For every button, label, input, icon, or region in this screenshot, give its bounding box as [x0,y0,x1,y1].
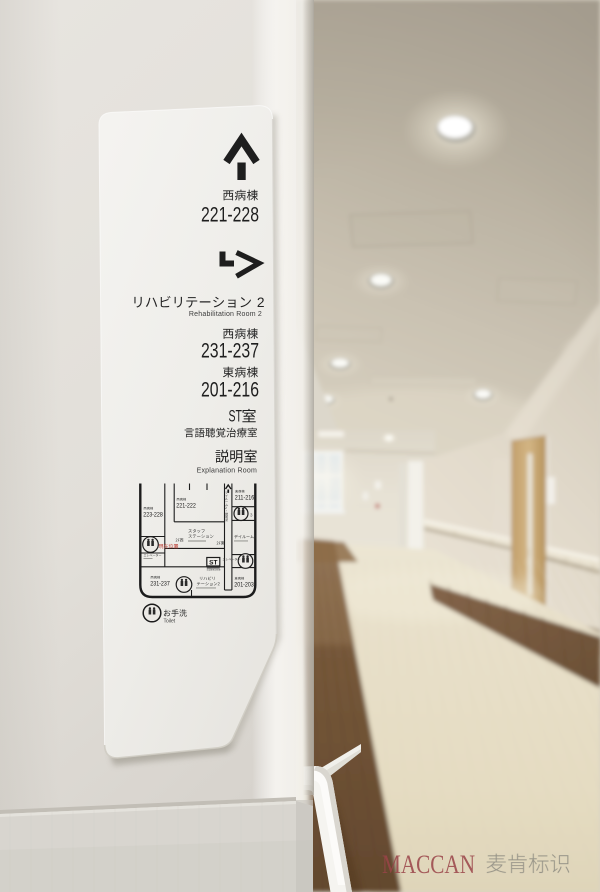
svg-text:201-203: 201-203 [234,582,254,589]
svg-text:ST: ST [229,407,243,426]
svg-text:211-216: 211-216 [235,495,255,502]
svg-text:2: 2 [257,295,265,310]
svg-text:ST: ST [209,559,217,566]
svg-text:Toilet: Toilet [164,619,176,625]
svg-text:221-228: 221-228 [201,204,259,227]
svg-text:223-228: 223-228 [143,512,163,519]
svg-text:MACCAN: MACCAN [382,850,475,879]
svg-text:231-237: 231-237 [150,581,170,588]
svg-text:Rehabilitation Room 2: Rehabilitation Room 2 [189,311,262,318]
svg-text:231-237: 231-237 [201,340,259,363]
svg-text:Explanation Room: Explanation Room [197,468,257,475]
svg-text:221-222: 221-222 [176,503,196,510]
svg-text:201-216: 201-216 [201,379,259,402]
